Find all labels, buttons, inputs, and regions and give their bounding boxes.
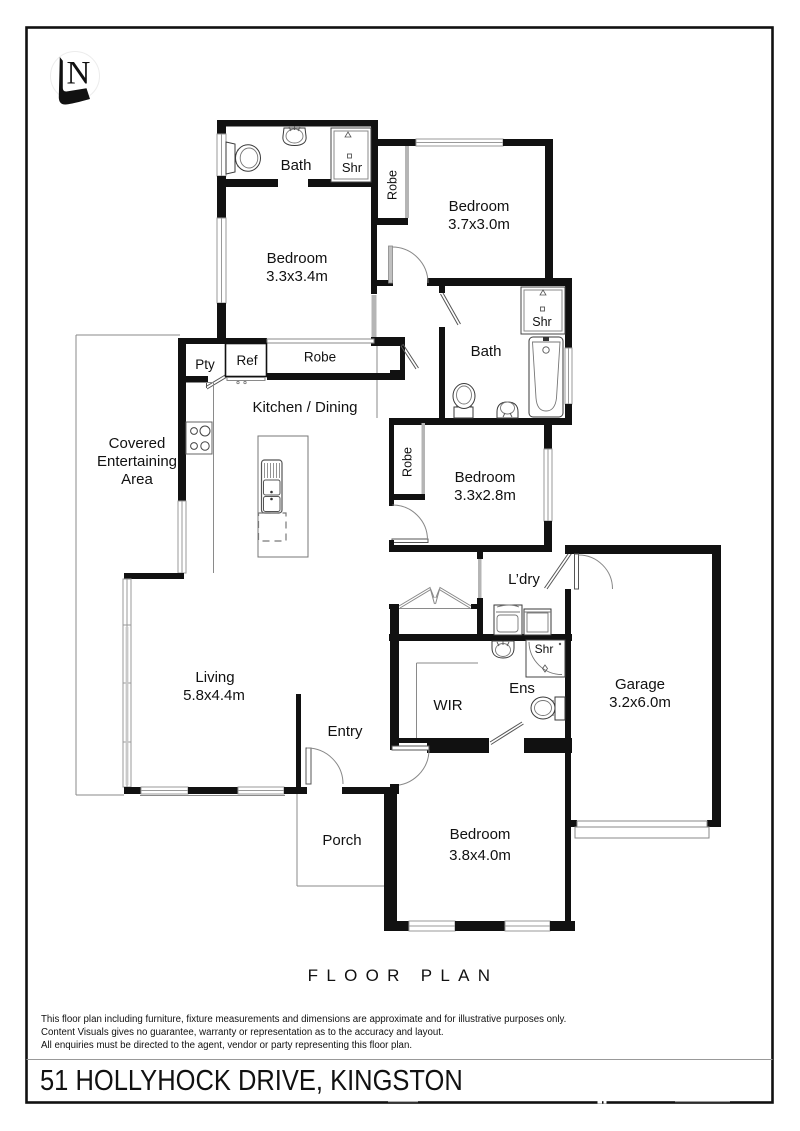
svg-text:Pty: Pty [195, 357, 215, 372]
svg-text:This floor plan including furn: This floor plan including furniture, fix… [41, 1014, 566, 1025]
svg-text:Entertaining: Entertaining [97, 453, 177, 470]
svg-text:N: N [67, 56, 91, 92]
svg-text:3.2x6.0m: 3.2x6.0m [609, 694, 671, 711]
svg-text:3.3x3.4m: 3.3x3.4m [266, 268, 328, 285]
svg-text:FLOOR PLAN: FLOOR PLAN [308, 966, 499, 985]
svg-text:3.8x4.0m: 3.8x4.0m [449, 847, 511, 864]
svg-text:Entry: Entry [327, 723, 363, 740]
svg-text:Shr: Shr [342, 160, 363, 175]
svg-text:Kitchen / Dining: Kitchen / Dining [252, 399, 357, 416]
svg-text:Shr: Shr [532, 315, 551, 329]
svg-text:Garage: Garage [615, 676, 665, 693]
svg-text:3.7x3.0m: 3.7x3.0m [448, 216, 510, 233]
svg-text:Area: Area [121, 471, 153, 488]
svg-text:Bedroom: Bedroom [267, 250, 328, 267]
svg-text:Ens: Ens [509, 680, 535, 697]
svg-text:51 HOLLYHOCK DRIVE, KINGSTON: 51 HOLLYHOCK DRIVE, KINGSTON [40, 1063, 463, 1096]
svg-text:Robe: Robe [386, 170, 400, 200]
svg-text:Bedroom: Bedroom [455, 469, 516, 486]
svg-text:Porch: Porch [322, 832, 361, 849]
svg-text:Bedroom: Bedroom [450, 826, 511, 843]
svg-text:Bath: Bath [281, 157, 312, 174]
svg-text:Shr: Shr [535, 642, 554, 656]
svg-text:Content Visuals gives no guara: Content Visuals gives no guarantee, warr… [41, 1027, 444, 1038]
svg-text:WIR: WIR [433, 697, 462, 714]
svg-text:Robe: Robe [304, 350, 336, 365]
svg-text:L’dry: L’dry [508, 571, 540, 588]
svg-text:Ref: Ref [236, 353, 257, 368]
svg-text:Bedroom: Bedroom [449, 198, 510, 215]
svg-text:All enquiries must be directed: All enquiries must be directed to the ag… [41, 1040, 412, 1051]
svg-text:3.3x2.8m: 3.3x2.8m [454, 487, 516, 504]
svg-text:Robe: Robe [401, 447, 415, 477]
svg-text:Bath: Bath [471, 343, 502, 360]
svg-text:5.8x4.4m: 5.8x4.4m [183, 687, 245, 704]
svg-text:Covered: Covered [109, 435, 166, 452]
svg-text:Living: Living [195, 669, 234, 686]
